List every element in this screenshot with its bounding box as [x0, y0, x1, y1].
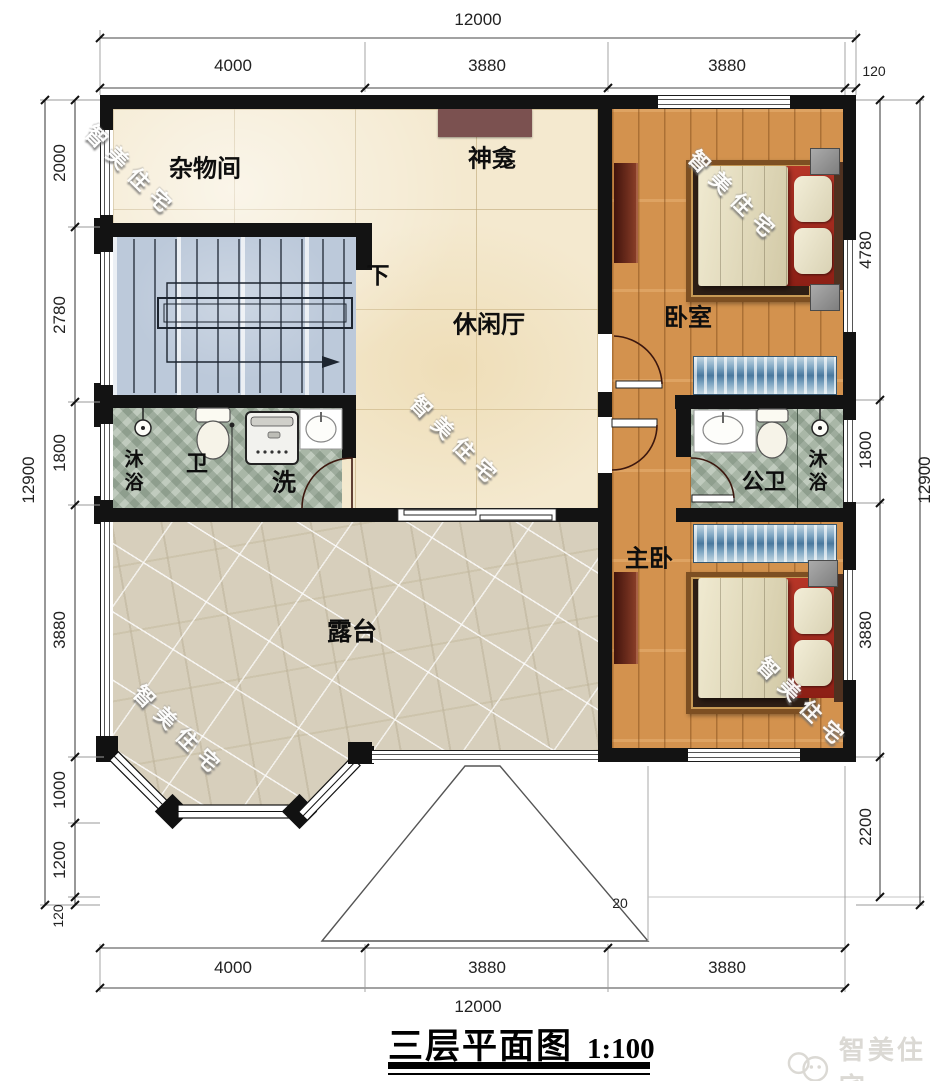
title-underline-thin	[388, 1073, 650, 1075]
dim-top-seg: 3880	[708, 56, 746, 76]
door-leaf-bedroom	[616, 381, 662, 388]
stairs-steps	[134, 239, 344, 393]
dim-right-seg: 3880	[856, 611, 876, 649]
dim-bottom-seg: 3880	[468, 958, 506, 978]
label-stairs-down: 下	[367, 256, 390, 290]
dim-left-seg: 2780	[50, 296, 70, 334]
dim-top-wall: 120	[862, 63, 885, 79]
door-arc-bedroom	[614, 336, 662, 384]
toilet-public-bath	[757, 409, 788, 458]
dim-top-total: 12000	[454, 10, 501, 30]
floor-plan-canvas: 杂物间 神龛 休闲厅 下 卧室 沐浴 卫 洗 公卫 沐浴 主卧 露台 智美住宅 …	[0, 0, 952, 1081]
dim-bottom-seg: 3880	[708, 958, 746, 978]
label-storage-room: 杂物间	[169, 149, 241, 184]
dim-right-seg: 2200	[856, 808, 876, 846]
dim-right-seg: 1800	[856, 431, 876, 469]
dim-right-total: 12900	[915, 456, 935, 503]
door-leaf-public-bath	[692, 495, 734, 502]
stairs-arrow	[322, 356, 340, 368]
roof-outline	[322, 766, 924, 941]
sink-left	[300, 409, 342, 449]
title-underline-thick	[388, 1062, 650, 1069]
door-bath-left	[302, 458, 352, 508]
door-leaf-corridor	[612, 419, 657, 427]
stairs-handrail-inner	[164, 304, 346, 322]
dim-bottom-total: 12000	[454, 997, 501, 1017]
washing-machine	[246, 412, 298, 464]
shower-head-right	[812, 409, 828, 436]
brand-logo-text: 智美住宅	[839, 1030, 952, 1081]
label-bedroom: 卧室	[664, 298, 712, 333]
dim-left-seg: 3880	[50, 611, 70, 649]
dim-left-seg: 120	[50, 904, 66, 927]
bay-window	[96, 736, 372, 829]
brand-logo-icon	[786, 1050, 831, 1081]
dim-left-seg: 1000	[50, 771, 70, 809]
brand-logo: 智美住宅	[786, 1030, 952, 1081]
sliding-door	[398, 509, 556, 521]
label-shower-right: 沐浴	[803, 449, 830, 495]
dim-right-seg: 4780	[856, 231, 876, 269]
dim-left-seg: 1200	[50, 841, 70, 879]
dim-left-seg: 2000	[50, 144, 70, 182]
label-toilet-left: 卫	[186, 446, 208, 478]
label-lounge: 休闲厅	[453, 305, 525, 340]
label-wash: 洗	[272, 463, 296, 498]
dim-top-seg: 4000	[214, 56, 252, 76]
door-arc-corridor	[612, 425, 657, 470]
dim-roof-note: 20	[612, 895, 628, 911]
sink-public-bath	[694, 410, 756, 452]
label-shower-left: 沐浴	[119, 449, 146, 495]
dim-bottom-seg: 4000	[214, 958, 252, 978]
label-public-bath: 公卫	[742, 464, 786, 496]
label-shrine: 神龛	[468, 139, 516, 174]
dim-left-total: 12900	[19, 456, 39, 503]
label-terrace: 露台	[327, 612, 377, 648]
door-arc-public-bath	[691, 458, 734, 498]
dim-left-seg: 1800	[50, 434, 70, 472]
shower-head-left	[135, 408, 151, 436]
label-master-bedroom: 主卧	[625, 539, 673, 574]
dim-top-seg: 3880	[468, 56, 506, 76]
